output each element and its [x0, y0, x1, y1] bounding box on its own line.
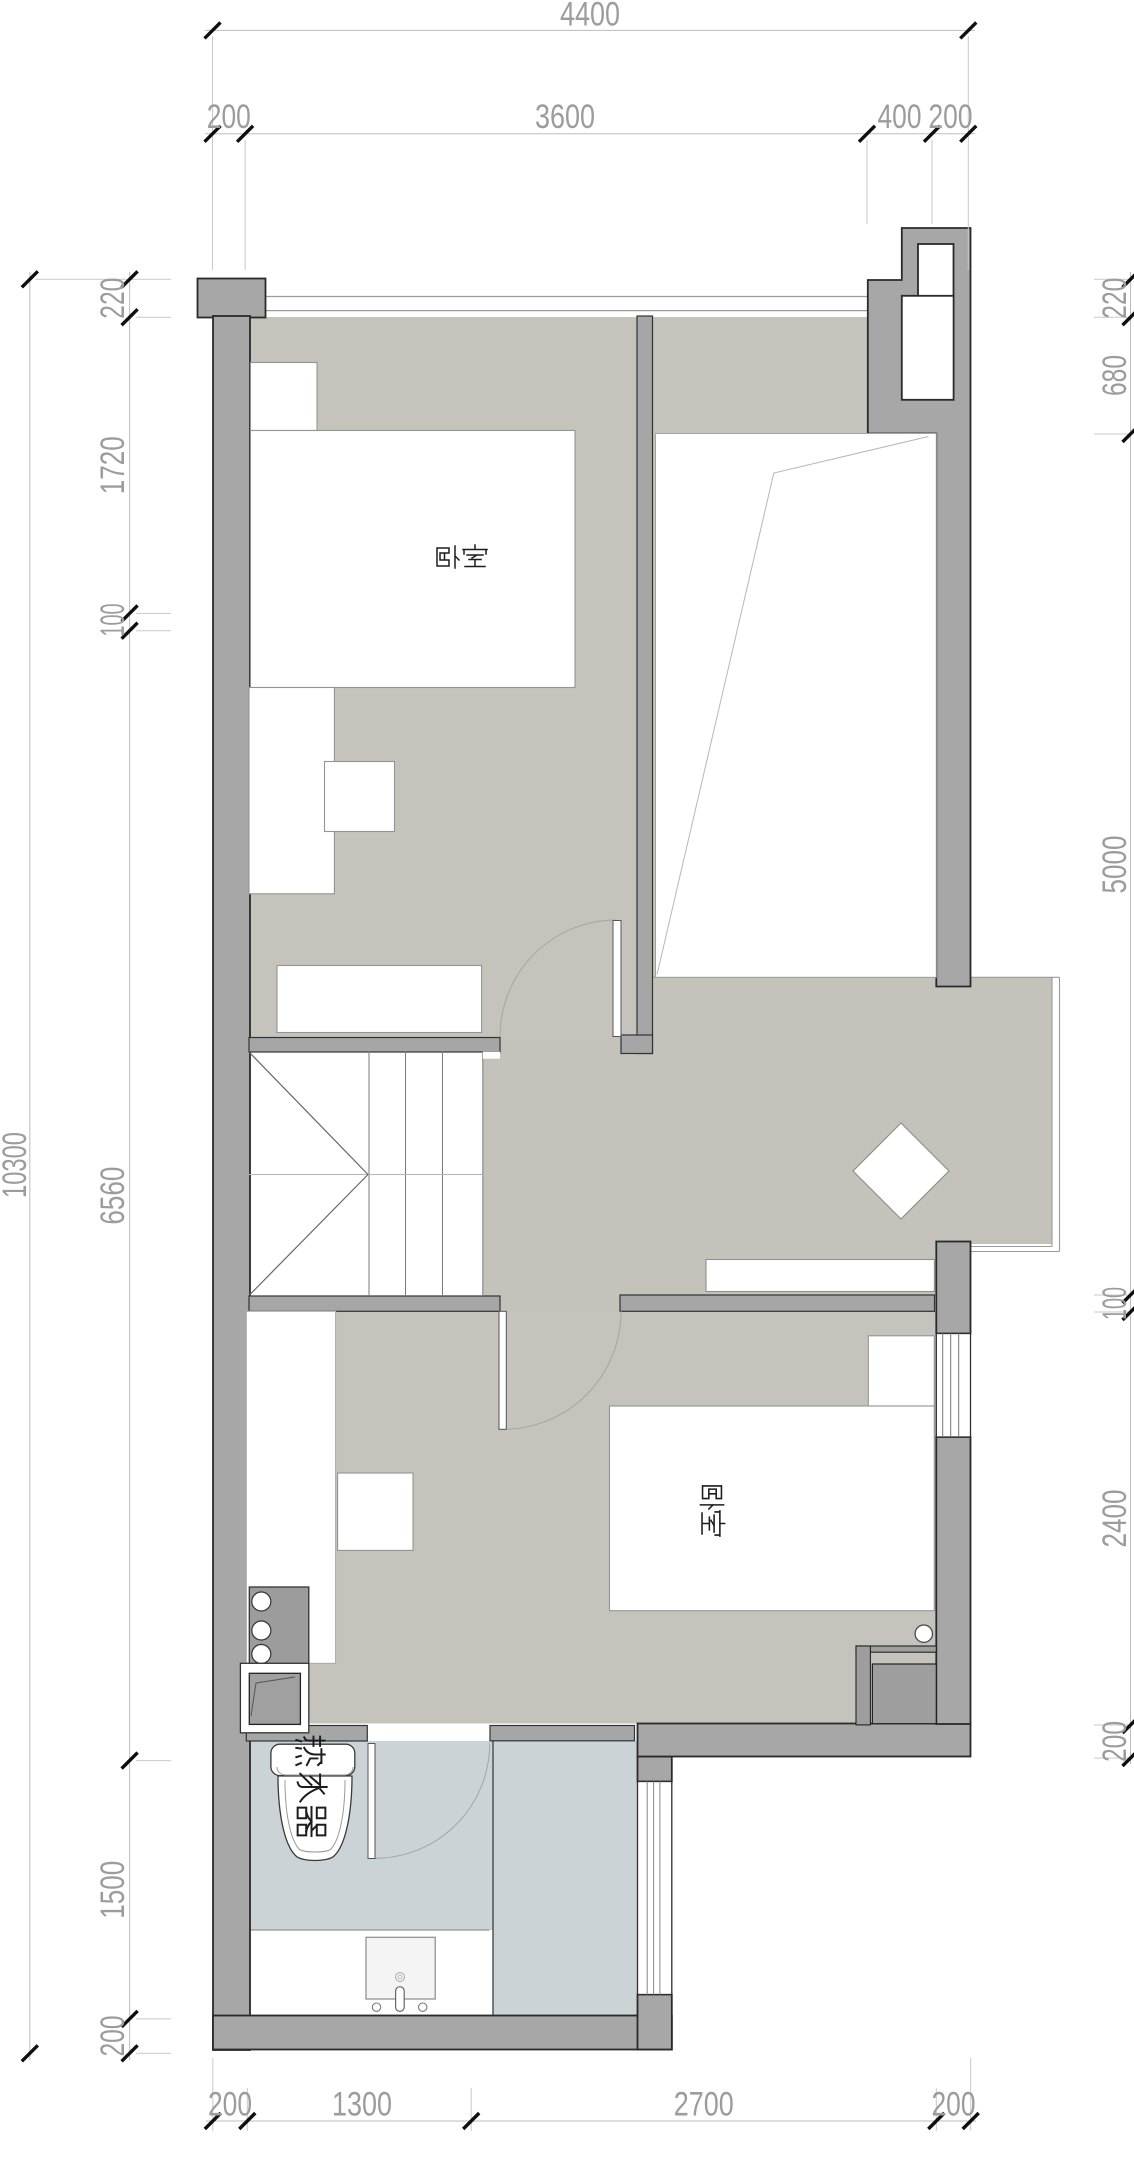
svg-text:200: 200 — [207, 98, 251, 136]
svg-text:200: 200 — [1096, 1721, 1134, 1762]
svg-text:5000: 5000 — [1096, 836, 1134, 894]
svg-text:1300: 1300 — [332, 2086, 392, 2124]
svg-text:1500: 1500 — [94, 1861, 132, 1919]
svg-text:200: 200 — [208, 2086, 252, 2124]
svg-text:680: 680 — [1096, 355, 1134, 396]
svg-text:2700: 2700 — [674, 2086, 734, 2124]
svg-text:100: 100 — [94, 604, 132, 637]
svg-text:220: 220 — [1096, 278, 1134, 319]
svg-text:100: 100 — [1096, 1287, 1134, 1320]
svg-text:2400: 2400 — [1096, 1490, 1134, 1548]
svg-text:400: 400 — [878, 98, 922, 136]
svg-text:200: 200 — [94, 2016, 132, 2057]
svg-text:3600: 3600 — [535, 98, 595, 136]
svg-text:6560: 6560 — [94, 1167, 132, 1225]
svg-text:200: 200 — [929, 98, 973, 136]
svg-text:200: 200 — [932, 2086, 976, 2124]
svg-text:4400: 4400 — [560, 0, 620, 34]
svg-text:1720: 1720 — [94, 436, 132, 494]
svg-text:10300: 10300 — [0, 1132, 34, 1198]
svg-text:220: 220 — [94, 278, 132, 319]
